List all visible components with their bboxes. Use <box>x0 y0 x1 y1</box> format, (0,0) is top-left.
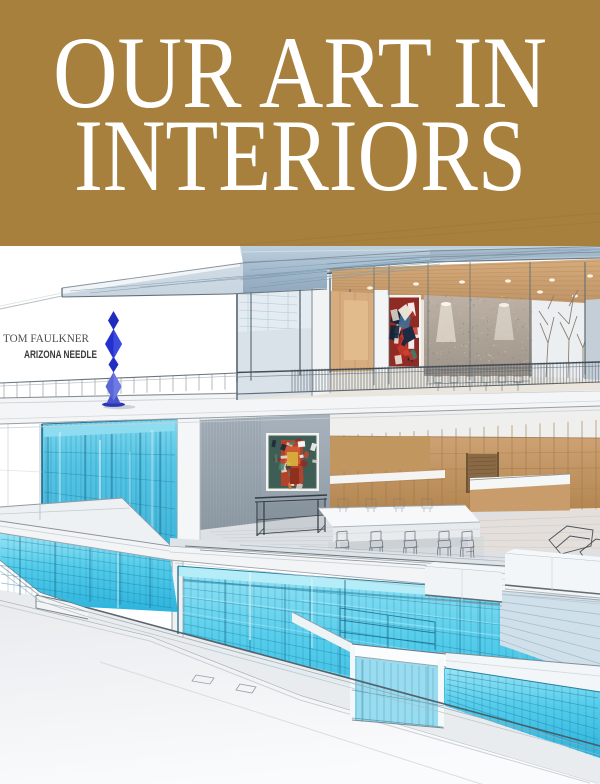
svg-text:ARIZONA NEEDLE: ARIZONA NEEDLE <box>24 349 97 361</box>
svg-text:INTERIORS: INTERIORS <box>74 99 526 213</box>
svg-text:TOM FAULKNER: TOM FAULKNER <box>3 333 89 345</box>
